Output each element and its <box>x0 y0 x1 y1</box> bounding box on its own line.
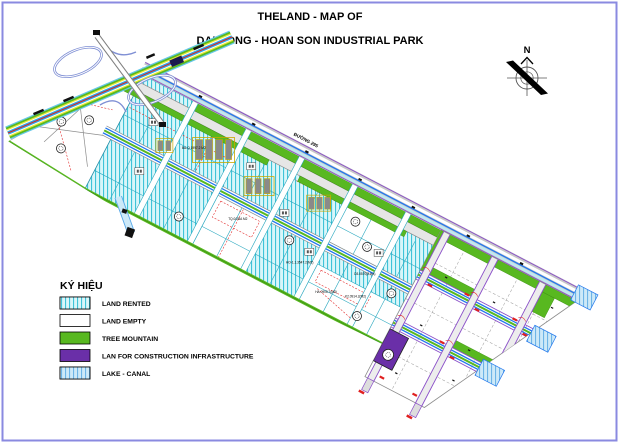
legend-title: KÝ HIỆU <box>60 279 103 292</box>
legend-label-land-rented: LAND RENTED <box>102 301 151 308</box>
plot-label: TQ.0/2BA M2 <box>228 217 247 221</box>
map-sheet: THELAND - MAP OF DAI DONG - HOAN SON IND… <box>0 0 620 444</box>
legend-swatch-lake-canal <box>60 367 90 379</box>
plot-label: D3.0570(2 HA) <box>354 272 375 276</box>
factory-buildings <box>307 195 331 211</box>
map-title-line1: THELAND - MAP OF <box>258 11 363 23</box>
legend-swatch-tree-mountain <box>60 332 90 344</box>
plot-label: HO-1.1.3547.2(M2) <box>286 261 313 265</box>
legend-label-land-empty: LAND EMPTY <box>102 319 147 326</box>
legend-label-lake-canal: LAKE - CANAL <box>102 371 150 378</box>
legend-swatch-infrastructure <box>60 350 90 362</box>
legend-label-infrastructure: LAN FOR CONSTRUCTION INFRASTRUCTURE <box>102 354 254 361</box>
plot-label: K2.0914.2(M2) <box>345 294 366 298</box>
factory-buildings <box>244 177 274 196</box>
map-canvas: THELAND - MAP OF DAI DONG - HOAN SON IND… <box>0 0 620 444</box>
legend-swatch-land-empty <box>60 315 90 327</box>
legend-swatch-land-rented <box>60 297 90 309</box>
compass-north-label: N <box>524 45 531 56</box>
legend-label-tree-mountain: TREE MOUNTAIN <box>102 336 158 343</box>
plot-label: HA.0905.7(M2) <box>315 290 337 294</box>
plot-label: BA-Q 1997.2 M2 <box>182 146 206 150</box>
